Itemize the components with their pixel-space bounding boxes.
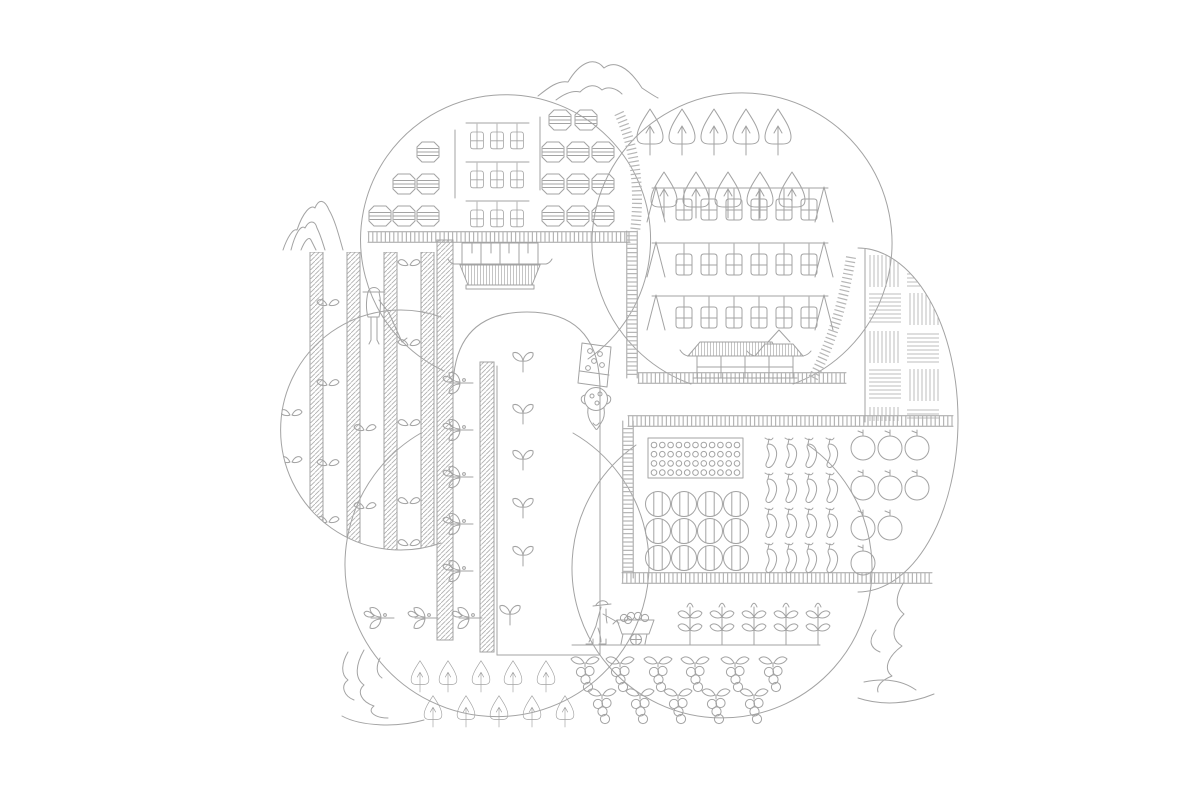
field-lobes <box>281 93 958 718</box>
melon-icon <box>672 519 697 544</box>
seed-holes <box>726 470 732 476</box>
seed-holes <box>718 470 724 476</box>
seed-holes <box>734 461 740 467</box>
beehive-icon <box>542 142 564 162</box>
tomato-icon <box>851 430 875 460</box>
grape-bunch-icon <box>588 689 616 724</box>
gourd-rail <box>466 123 529 149</box>
beehive-icon <box>567 174 589 194</box>
beehive-icon <box>575 110 597 130</box>
loop-garden <box>364 312 611 655</box>
seed-holes <box>718 442 724 448</box>
seed-holes <box>709 470 715 476</box>
field-sprout-icon <box>398 420 420 426</box>
loop-tilled-strip <box>480 362 494 652</box>
hanging-gourd-icon <box>511 202 524 227</box>
seedling-icon <box>513 498 533 518</box>
hanging-gourd-icon <box>676 244 692 275</box>
tomato-icon <box>905 430 929 460</box>
paddy-checkerboard <box>869 255 939 421</box>
chili-pepper-icon <box>765 438 777 468</box>
chili-pepper-icon <box>826 508 838 538</box>
beehive-icon <box>549 110 571 130</box>
seed-holes <box>718 461 724 467</box>
tomato-icon <box>878 510 902 540</box>
paddy-cell <box>869 255 901 287</box>
chili-pepper-icon <box>785 438 797 468</box>
seed-holes <box>693 470 699 476</box>
seed-holes <box>651 461 657 467</box>
hanging-gourd-icon <box>751 297 767 328</box>
beehive-icon <box>369 206 391 226</box>
melon-icon <box>672 546 697 571</box>
field-sprout-icon <box>398 498 420 504</box>
seed-holes <box>676 470 682 476</box>
chili-pepper-icon <box>826 543 838 573</box>
hanging-gourd-icon <box>491 163 504 188</box>
scenery <box>283 62 934 725</box>
farm-illustration <box>0 0 1200 802</box>
chili-pepper-icon <box>785 543 797 573</box>
seed-holes <box>718 451 724 457</box>
beehive-icon <box>417 142 439 162</box>
field-sprout-icon <box>398 540 420 546</box>
seed-holes <box>660 451 666 457</box>
tilled-strip <box>310 252 323 552</box>
chili-pepper-icon <box>765 543 777 573</box>
stream-left-icon <box>342 650 424 725</box>
paddy-cell <box>907 407 939 421</box>
gourd-rail <box>466 201 529 227</box>
poplar-tree-icon <box>537 661 555 692</box>
melon-icon <box>724 546 749 571</box>
tomato-icon <box>851 510 875 540</box>
grape-bunch-icon <box>702 689 730 724</box>
chili-pepper-icon <box>826 438 838 468</box>
seed-holes <box>701 461 707 467</box>
seed-holes <box>668 470 674 476</box>
chili-pepper-icon <box>785 473 797 503</box>
seedling-icon <box>500 605 520 625</box>
melon-icon <box>646 519 671 544</box>
seed-holes <box>701 470 707 476</box>
tomato-icon <box>851 470 875 500</box>
hanging-gourd-icon <box>676 189 692 220</box>
tilled-strip <box>347 252 360 552</box>
hanging-gourd-icon <box>726 244 742 275</box>
beehive-icon <box>592 142 614 162</box>
tea-plant-icon <box>452 607 482 628</box>
beehive-icon <box>567 142 589 162</box>
field-sprout-icon <box>280 410 302 416</box>
young-plant-icon <box>678 603 702 645</box>
tea-plant-icon <box>364 607 394 628</box>
young-plant-icon <box>806 603 830 645</box>
seed-holes <box>651 470 657 476</box>
mountain-ridge-icon <box>538 62 658 100</box>
vegetable-plot <box>646 430 930 575</box>
farmhouse-icon <box>448 243 552 289</box>
hanging-gourd-icon <box>776 297 792 328</box>
seed-holes <box>651 451 657 457</box>
hanging-gourd-icon <box>701 297 717 328</box>
seed-holes <box>701 442 707 448</box>
seed-holes <box>651 442 657 448</box>
trellis-frame-icon <box>815 242 833 277</box>
paddy-cell <box>907 255 939 287</box>
hanging-gourd-icon <box>471 124 484 149</box>
stream-right-icon <box>858 582 934 703</box>
temple-icon <box>680 330 811 378</box>
chili-pepper-icon <box>765 508 777 538</box>
poplar-tree-icon <box>701 109 727 155</box>
seed-holes <box>709 451 715 457</box>
melon-icon <box>724 492 749 517</box>
grape-bunch-icon <box>740 689 768 724</box>
melon-icon <box>698 546 723 571</box>
seed-holes <box>726 461 732 467</box>
grape-bunch-icon <box>664 689 692 724</box>
poplar-tree-icon <box>669 109 695 155</box>
illustration-canvas <box>0 0 1200 802</box>
seed-holes <box>734 470 740 476</box>
seed-holes <box>684 461 690 467</box>
farmer-seeding-icon <box>578 343 611 430</box>
hanging-gourd-icon <box>511 163 524 188</box>
grape-bunch-icon <box>571 657 599 692</box>
poplar-tree-icon <box>411 661 429 692</box>
beehive-icon <box>393 206 415 226</box>
field-sprout-icon <box>398 260 420 266</box>
poplar-tree-icon <box>765 109 791 155</box>
tomato-icon <box>905 470 929 500</box>
paddy-cell <box>869 331 901 363</box>
melon-icon <box>646 492 671 517</box>
trellis-frame-icon <box>647 295 665 330</box>
trellis-row <box>647 295 833 330</box>
trellis-frame-icon <box>815 295 833 330</box>
seed-holes <box>660 461 666 467</box>
hanging-gourd-icon <box>511 124 524 149</box>
poplar-tree-icon <box>683 172 709 218</box>
hanging-gourd-icon <box>801 244 817 275</box>
bottom-gardens <box>411 601 830 727</box>
seedling-icon <box>513 450 533 470</box>
apiary-dividers <box>455 117 540 198</box>
chili-pepper-icon <box>805 438 817 468</box>
beehive-icon <box>417 206 439 226</box>
seed-holes <box>709 461 715 467</box>
seed-holes <box>676 442 682 448</box>
beehive-icon <box>592 174 614 194</box>
tea-plant-icon <box>408 607 438 628</box>
beehive-icon <box>592 206 614 226</box>
poplar-tree-icon <box>504 661 522 692</box>
hanging-gourd-icon <box>726 297 742 328</box>
lobe-left <box>281 310 441 550</box>
paddy-cell <box>907 293 939 325</box>
seed-holes <box>734 442 740 448</box>
tilled-strip <box>384 252 397 552</box>
chili-pepper-icon <box>805 508 817 538</box>
gourd-rail <box>466 162 529 188</box>
hanging-gourd-icon <box>471 163 484 188</box>
hanging-gourd-icon <box>491 202 504 227</box>
grape-bunch-icon <box>681 657 709 692</box>
seed-holes <box>676 451 682 457</box>
seedling-icon <box>513 352 533 372</box>
roads <box>368 113 953 640</box>
poplar-tree-icon <box>651 172 677 218</box>
poplar-tree-icon <box>472 661 490 692</box>
trellis-row <box>647 242 833 277</box>
chili-pepper-icon <box>826 473 838 503</box>
seed-holes <box>668 442 674 448</box>
poplar-tree-icon <box>715 172 741 218</box>
paddy-cell <box>869 369 901 401</box>
seed-holes <box>709 442 715 448</box>
seed-holes <box>684 470 690 476</box>
poplar-tree-icon <box>457 696 475 727</box>
grape-bunch-icon <box>721 657 749 692</box>
chili-pepper-icon <box>785 508 797 538</box>
seed-holes <box>668 461 674 467</box>
melon-icon <box>698 519 723 544</box>
paddy-cell <box>907 331 939 363</box>
young-plant-icon <box>742 603 766 645</box>
hanging-gourd-icon <box>701 189 717 220</box>
trellis-frame-icon <box>815 187 833 222</box>
seed-holes <box>726 451 732 457</box>
hanging-gourd-icon <box>471 202 484 227</box>
melon-icon <box>698 492 723 517</box>
seed-holes <box>660 442 666 448</box>
seed-holes <box>693 451 699 457</box>
seedling-icon <box>513 404 533 424</box>
poplar-tree-icon <box>424 696 442 727</box>
seed-holes <box>726 442 732 448</box>
seed-holes <box>676 461 682 467</box>
orchard-quarter <box>637 109 833 378</box>
paddy-cell <box>907 369 939 401</box>
hanging-gourd-icon <box>751 244 767 275</box>
hanging-gourd-icon <box>491 124 504 149</box>
hanging-gourd-icon <box>676 297 692 328</box>
tomato-icon <box>878 470 902 500</box>
tilled-strip <box>421 252 434 552</box>
chili-pepper-icon <box>765 473 777 503</box>
tilled-field-left <box>280 252 434 552</box>
hanging-gourd-icon <box>776 244 792 275</box>
seed-holes <box>660 470 666 476</box>
seed-holes <box>693 461 699 467</box>
mountain-icon <box>283 201 343 250</box>
hanging-gourd-icon <box>751 189 767 220</box>
beehive-icon <box>567 206 589 226</box>
chili-pepper-icon <box>805 543 817 573</box>
seedling-icon <box>513 546 533 566</box>
melon-icon <box>724 519 749 544</box>
beehive-icon <box>393 174 415 194</box>
seed-holes <box>684 442 690 448</box>
seed-holes <box>734 451 740 457</box>
hanging-gourd-icon <box>801 297 817 328</box>
seed-holes <box>701 451 707 457</box>
chili-pepper-icon <box>805 473 817 503</box>
farmer-wheelbarrow-icon <box>586 601 654 645</box>
seed-holes <box>668 451 674 457</box>
paddy-cell <box>869 407 901 421</box>
hanging-gourd-icon <box>701 244 717 275</box>
lobe-top-left <box>361 95 651 371</box>
beehive-icon <box>417 174 439 194</box>
beehive-icon <box>542 174 564 194</box>
seed-tray <box>648 438 743 478</box>
poplar-tree-icon <box>439 661 457 692</box>
paddy-cell <box>869 293 901 325</box>
beehive-icon <box>542 206 564 226</box>
grape-bunch-icon <box>644 657 672 692</box>
poplar-tree-icon <box>490 696 508 727</box>
young-plant-icon <box>710 603 734 645</box>
tomato-icon <box>878 430 902 460</box>
seed-holes <box>693 442 699 448</box>
poplar-tree-icon <box>733 109 759 155</box>
young-plant-icon <box>774 603 798 645</box>
seed-holes <box>684 451 690 457</box>
melon-icon <box>672 492 697 517</box>
grape-bunch-icon <box>759 657 787 692</box>
loop-path <box>453 312 600 655</box>
